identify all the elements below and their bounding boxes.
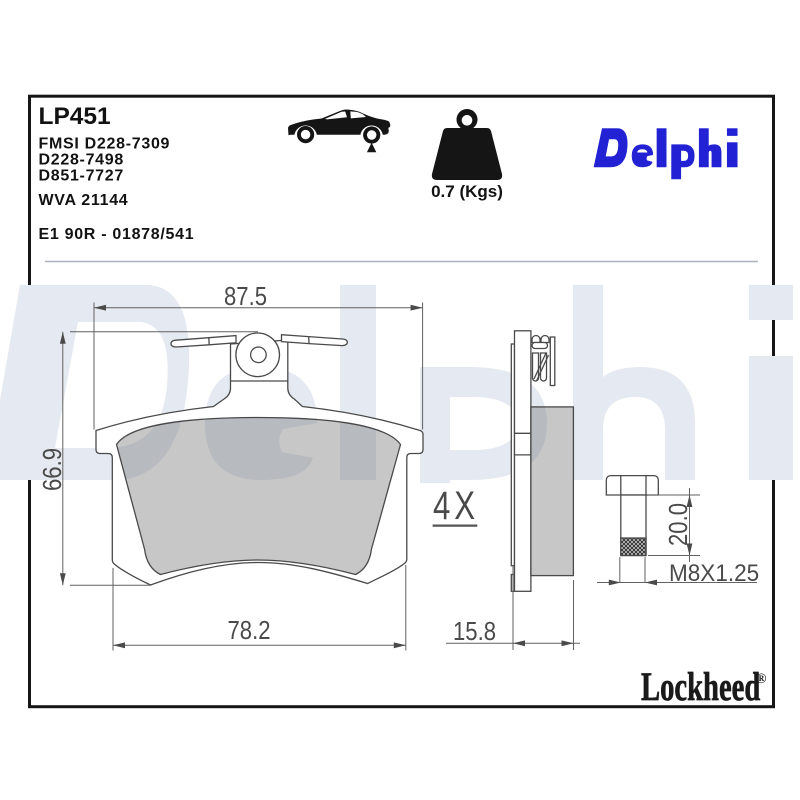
svg-text:LP451: LP451 <box>39 103 111 130</box>
svg-text:D851-7727: D851-7727 <box>39 168 124 185</box>
svg-text:15.8: 15.8 <box>453 617 496 646</box>
svg-text:20.0: 20.0 <box>664 503 693 546</box>
svg-text:66.9: 66.9 <box>38 448 67 491</box>
svg-text:78.2: 78.2 <box>228 616 271 645</box>
svg-text:M8X1.25: M8X1.25 <box>669 559 759 586</box>
svg-text:E1 90R - 01878/541: E1 90R - 01878/541 <box>39 226 195 243</box>
svg-text:4X: 4X <box>433 483 479 528</box>
svg-text:®: ® <box>756 672 767 687</box>
svg-text:WVA 21144: WVA 21144 <box>39 192 129 209</box>
svg-text:Lockheed: Lockheed <box>641 664 760 709</box>
svg-text:87.5: 87.5 <box>224 282 267 311</box>
svg-text:D228-7498: D228-7498 <box>39 152 124 169</box>
svg-text:FMSI D228-7309: FMSI D228-7309 <box>39 136 171 153</box>
svg-text:0.7 (Kgs): 0.7 (Kgs) <box>431 182 503 201</box>
